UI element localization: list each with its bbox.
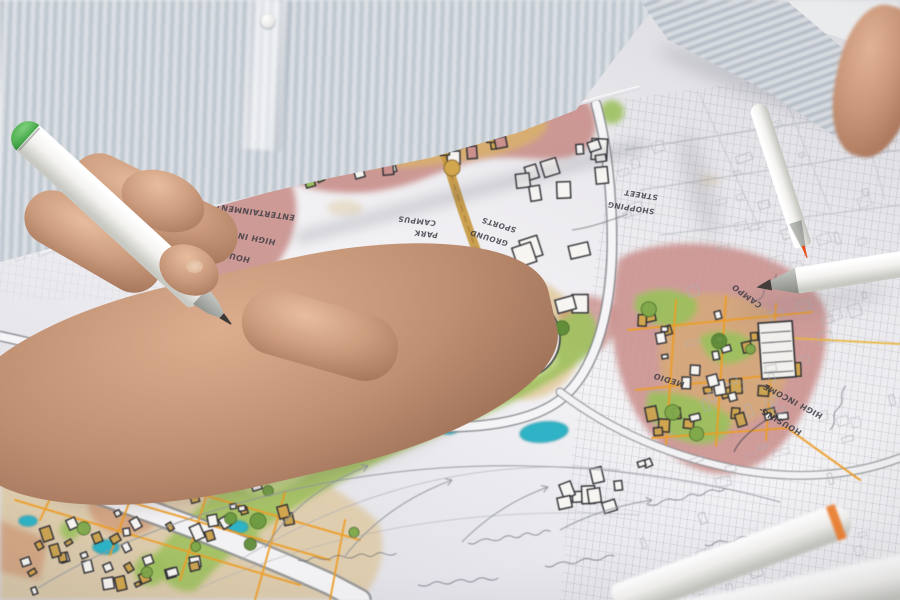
fingernail: [186, 260, 203, 273]
person-left-hand: [0, 0, 900, 600]
photo-urban-planning-scene: ENTERTAINMENTHIGH INCOMEHOUSINGHIGH INCO…: [0, 0, 900, 600]
